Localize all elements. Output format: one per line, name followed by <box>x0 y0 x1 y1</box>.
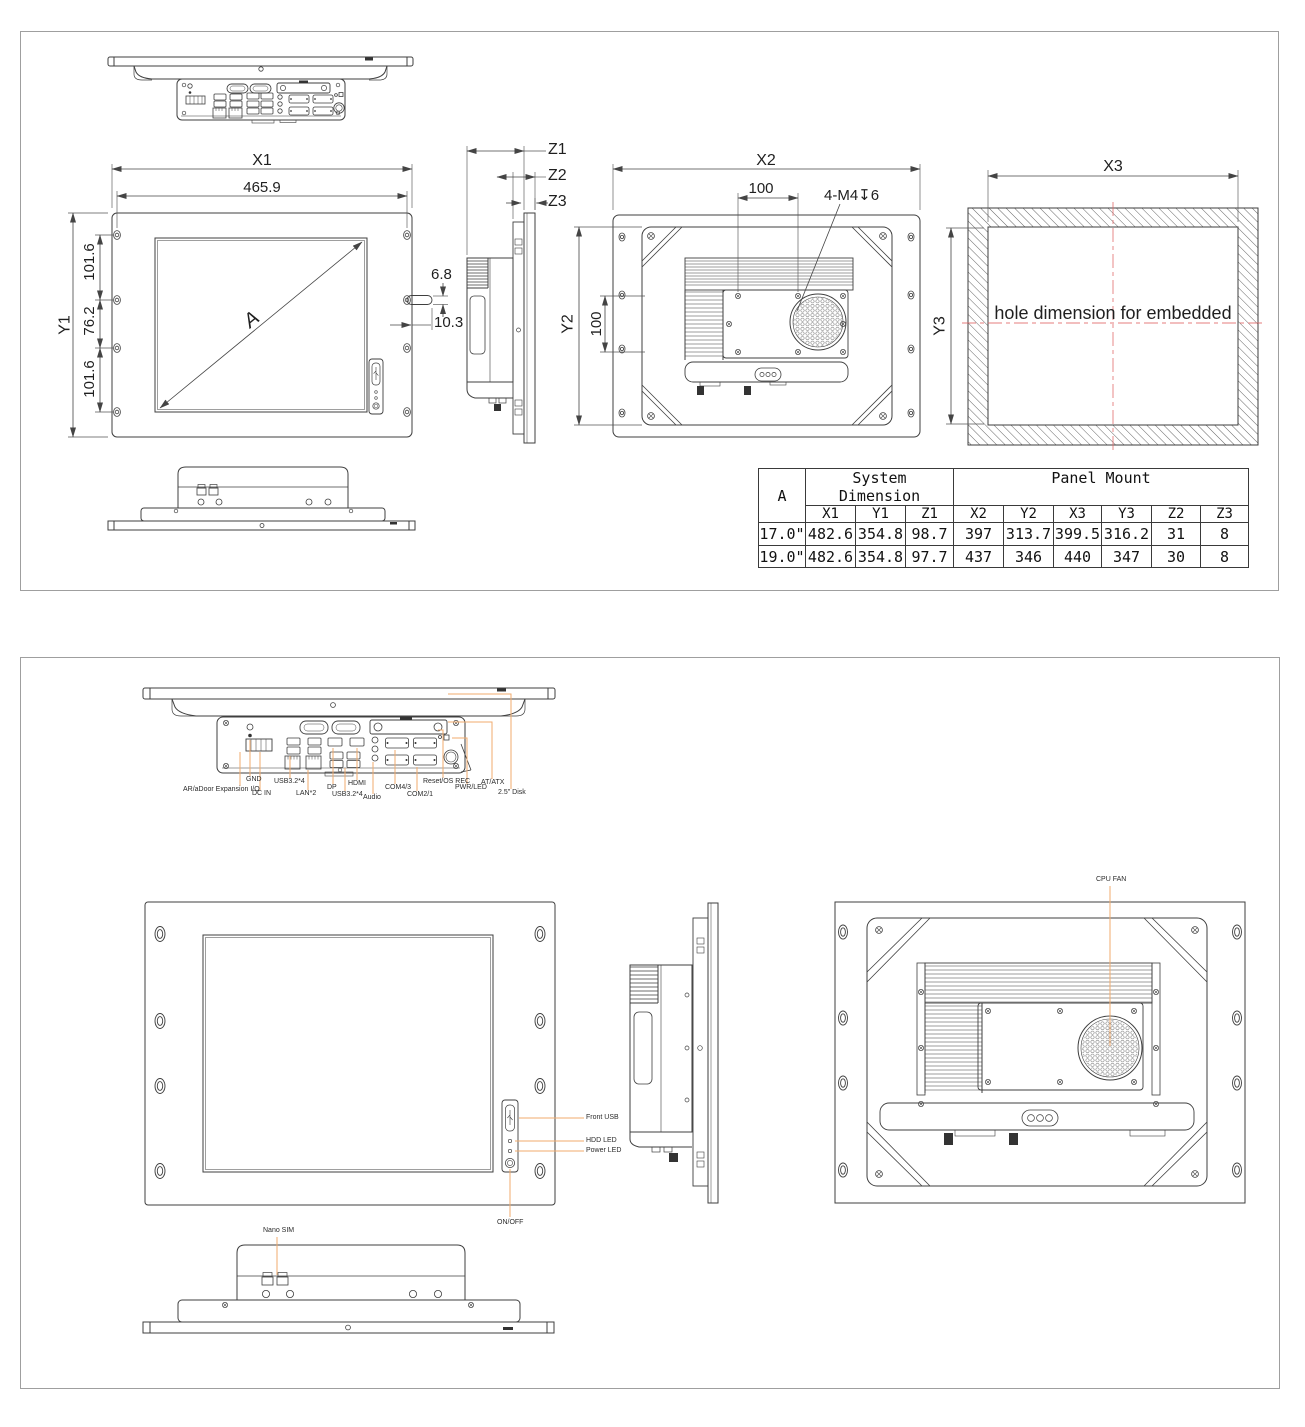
io-label-audio: Audio <box>363 794 381 801</box>
dim-103-label: 10.3 <box>434 315 463 331</box>
io-label-dc-in: DC IN <box>252 790 271 797</box>
io-label-com21: COM2/1 <box>407 791 433 798</box>
io-label-hdmi: HDMI <box>348 780 366 787</box>
dim-x3-label: X3 <box>1103 159 1123 176</box>
table-row: 19.0" 482.6 354.8 97.7 437 346 440 347 3… <box>759 546 1249 568</box>
front-usb-label: Front USB <box>586 1114 619 1121</box>
p1-bottom-view <box>108 467 415 530</box>
group-system-line1: System <box>806 469 953 487</box>
p2-side-view <box>630 903 718 1203</box>
row2-size: 19.0" <box>759 546 806 568</box>
nano-sim-label: Nano SIM <box>263 1227 294 1234</box>
p1-top-view <box>108 57 413 123</box>
p1-side-view <box>467 146 548 443</box>
dim-465-label: 465.9 <box>243 180 281 196</box>
io-label-usb1: USB3.2*4 <box>274 778 305 785</box>
p2-top-view <box>143 688 555 776</box>
io-label-expansion: AR/aDoor Expansion I/O <box>183 786 260 793</box>
table-corner-a: A <box>759 469 806 523</box>
dim-z1-label: Z1 <box>548 142 567 159</box>
p2-front-leader-lines <box>510 1118 584 1217</box>
table-group-panel-mount: Panel Mount <box>954 469 1249 506</box>
dim-100h-label: 100 <box>748 181 773 197</box>
p1-front-view <box>68 164 448 437</box>
dim-x2-label: X2 <box>756 153 776 170</box>
table-group-system: System Dimension <box>806 469 954 506</box>
cpu-fan-label: CPU FAN <box>1096 876 1126 883</box>
dim-seg3-label: 101.6 <box>82 360 98 398</box>
dim-z3-label: Z3 <box>548 194 567 211</box>
dim-y2-label: Y2 <box>561 314 578 334</box>
col-y3: Y3 <box>1102 506 1152 523</box>
drawing-linework <box>0 0 1305 1427</box>
col-y2: Y2 <box>1004 506 1054 523</box>
embedded-caption: hole dimension for embedded <box>994 304 1231 323</box>
dim-68-label: 6.8 <box>431 267 452 283</box>
io-label-at-atx: AT/ATX <box>481 779 504 786</box>
hdd-led-label: HDD LED <box>586 1137 617 1144</box>
power-led-label: Power LED <box>586 1147 621 1154</box>
row1-size: 17.0" <box>759 523 806 546</box>
dim-seg2-label: 76.2 <box>82 306 98 335</box>
table-row: 17.0" 482.6 354.8 98.7 397 313.7 399.5 3… <box>759 523 1249 546</box>
drawing-page: X1 465.9 Y1 101.6 76.2 101.6 6.8 10.3 A … <box>0 0 1305 1427</box>
col-x1: X1 <box>806 506 856 523</box>
col-z1: Z1 <box>906 506 954 523</box>
p1-rear-view <box>574 164 920 437</box>
group-system-line2: Dimension <box>806 487 953 505</box>
thread-note-label: 4-M4↧6 <box>824 188 879 204</box>
dimension-table: A System Dimension Panel Mount X1 Y1 Z1 … <box>758 468 1249 568</box>
dim-y3-label: Y3 <box>933 316 950 336</box>
col-y1: Y1 <box>856 506 906 523</box>
col-x2: X2 <box>954 506 1004 523</box>
io-label-usb2: USB3.2*4 <box>332 791 363 798</box>
dim-y1-label: Y1 <box>58 315 75 335</box>
p2-bottom-view <box>143 1245 554 1333</box>
on-off-label: ON/OFF <box>497 1219 523 1226</box>
col-z2: Z2 <box>1152 506 1201 523</box>
dim-seg1-label: 101.6 <box>82 243 98 281</box>
io-label-lan: LAN*2 <box>296 790 316 797</box>
io-label-disk: 2.5" Disk <box>498 789 526 796</box>
p2-rear-view <box>835 902 1245 1203</box>
dim-z2-label: Z2 <box>548 168 567 185</box>
col-z3: Z3 <box>1201 506 1249 523</box>
io-label-gnd: GND <box>246 776 262 783</box>
col-x3: X3 <box>1054 506 1102 523</box>
p2-front-view <box>145 902 555 1205</box>
dim-100v-label: 100 <box>589 311 605 336</box>
dim-x1-label: X1 <box>252 153 272 170</box>
